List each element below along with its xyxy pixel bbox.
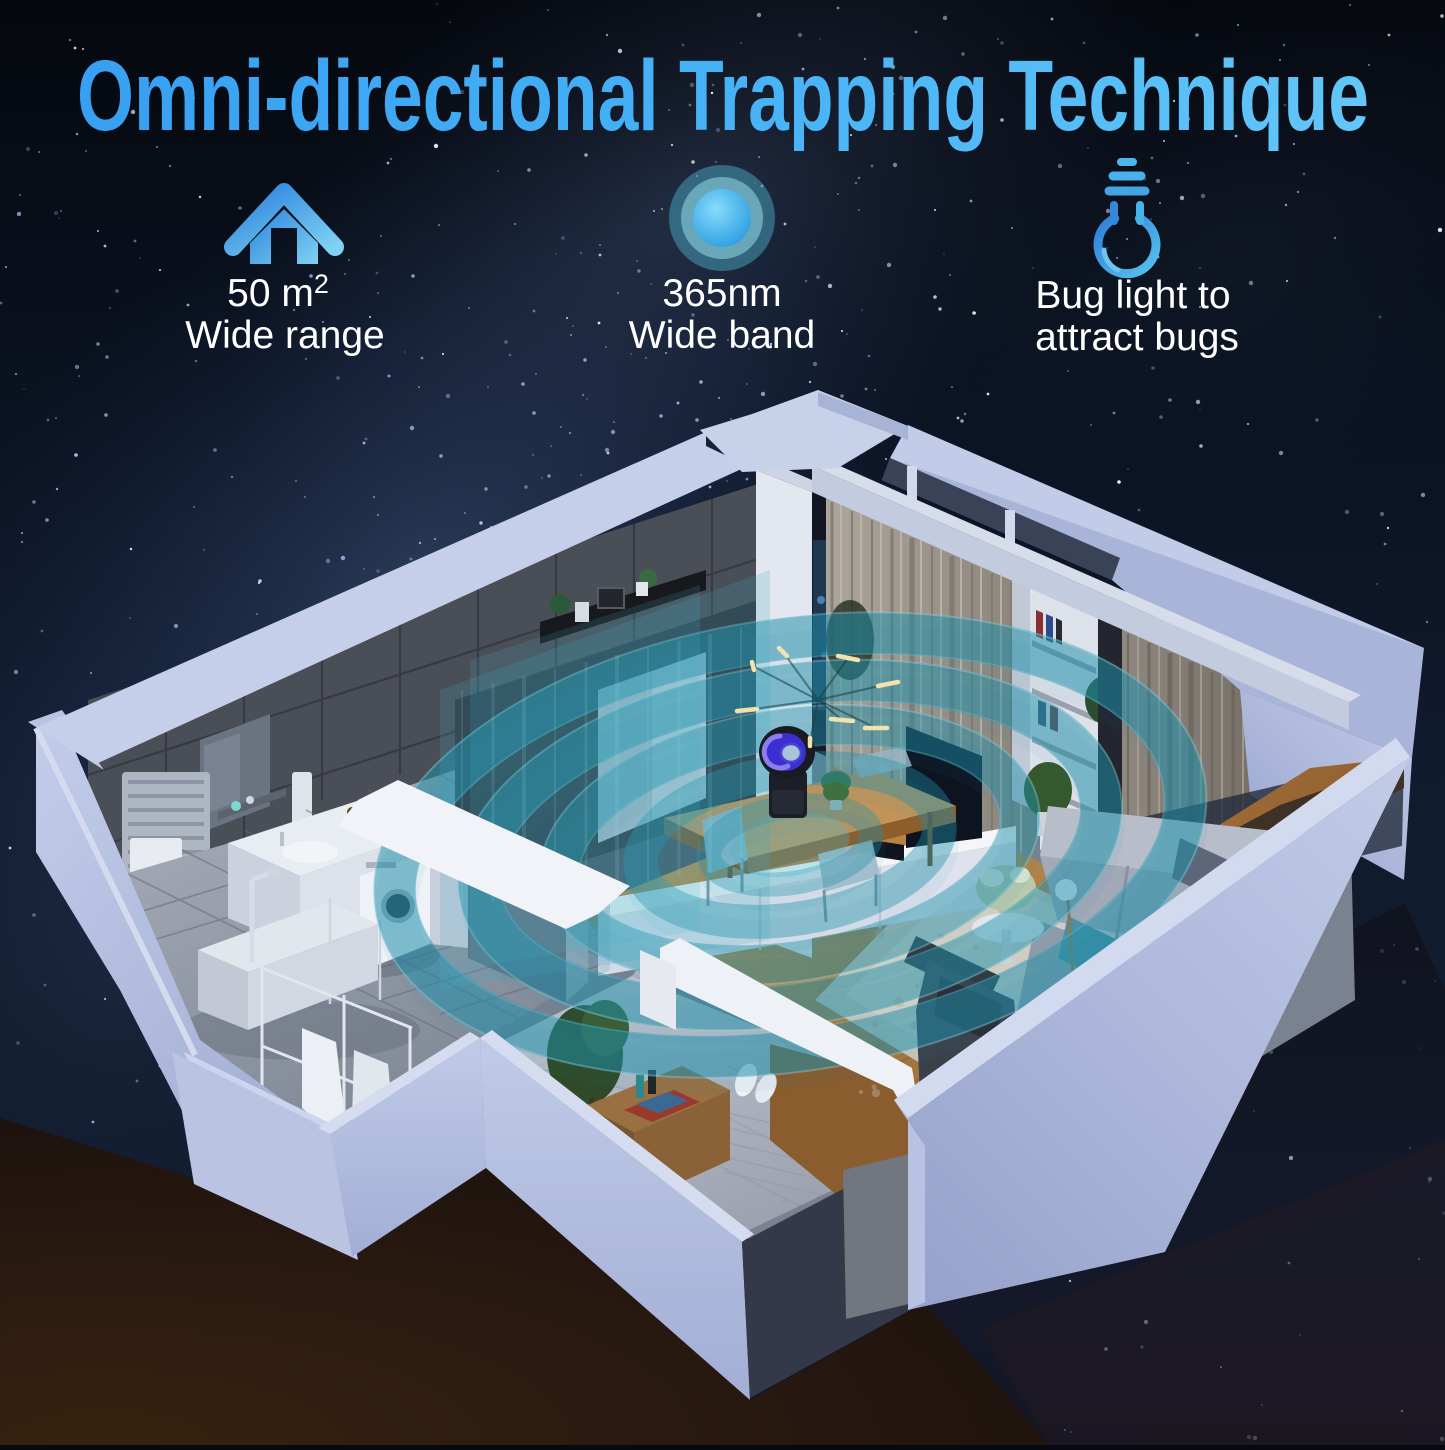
svg-text:Bug light to: Bug light to <box>1035 274 1230 317</box>
svg-text:Wide range: Wide range <box>185 314 384 357</box>
svg-text:Omni-directional Trapping Tech: Omni-directional Trapping Technique <box>77 40 1369 152</box>
svg-text:365nm: 365nm <box>662 272 781 315</box>
svg-text:50 m2: 50 m2 <box>227 269 329 315</box>
svg-text:Wide band: Wide band <box>629 314 815 357</box>
svg-text:attract bugs: attract bugs <box>1035 316 1239 359</box>
